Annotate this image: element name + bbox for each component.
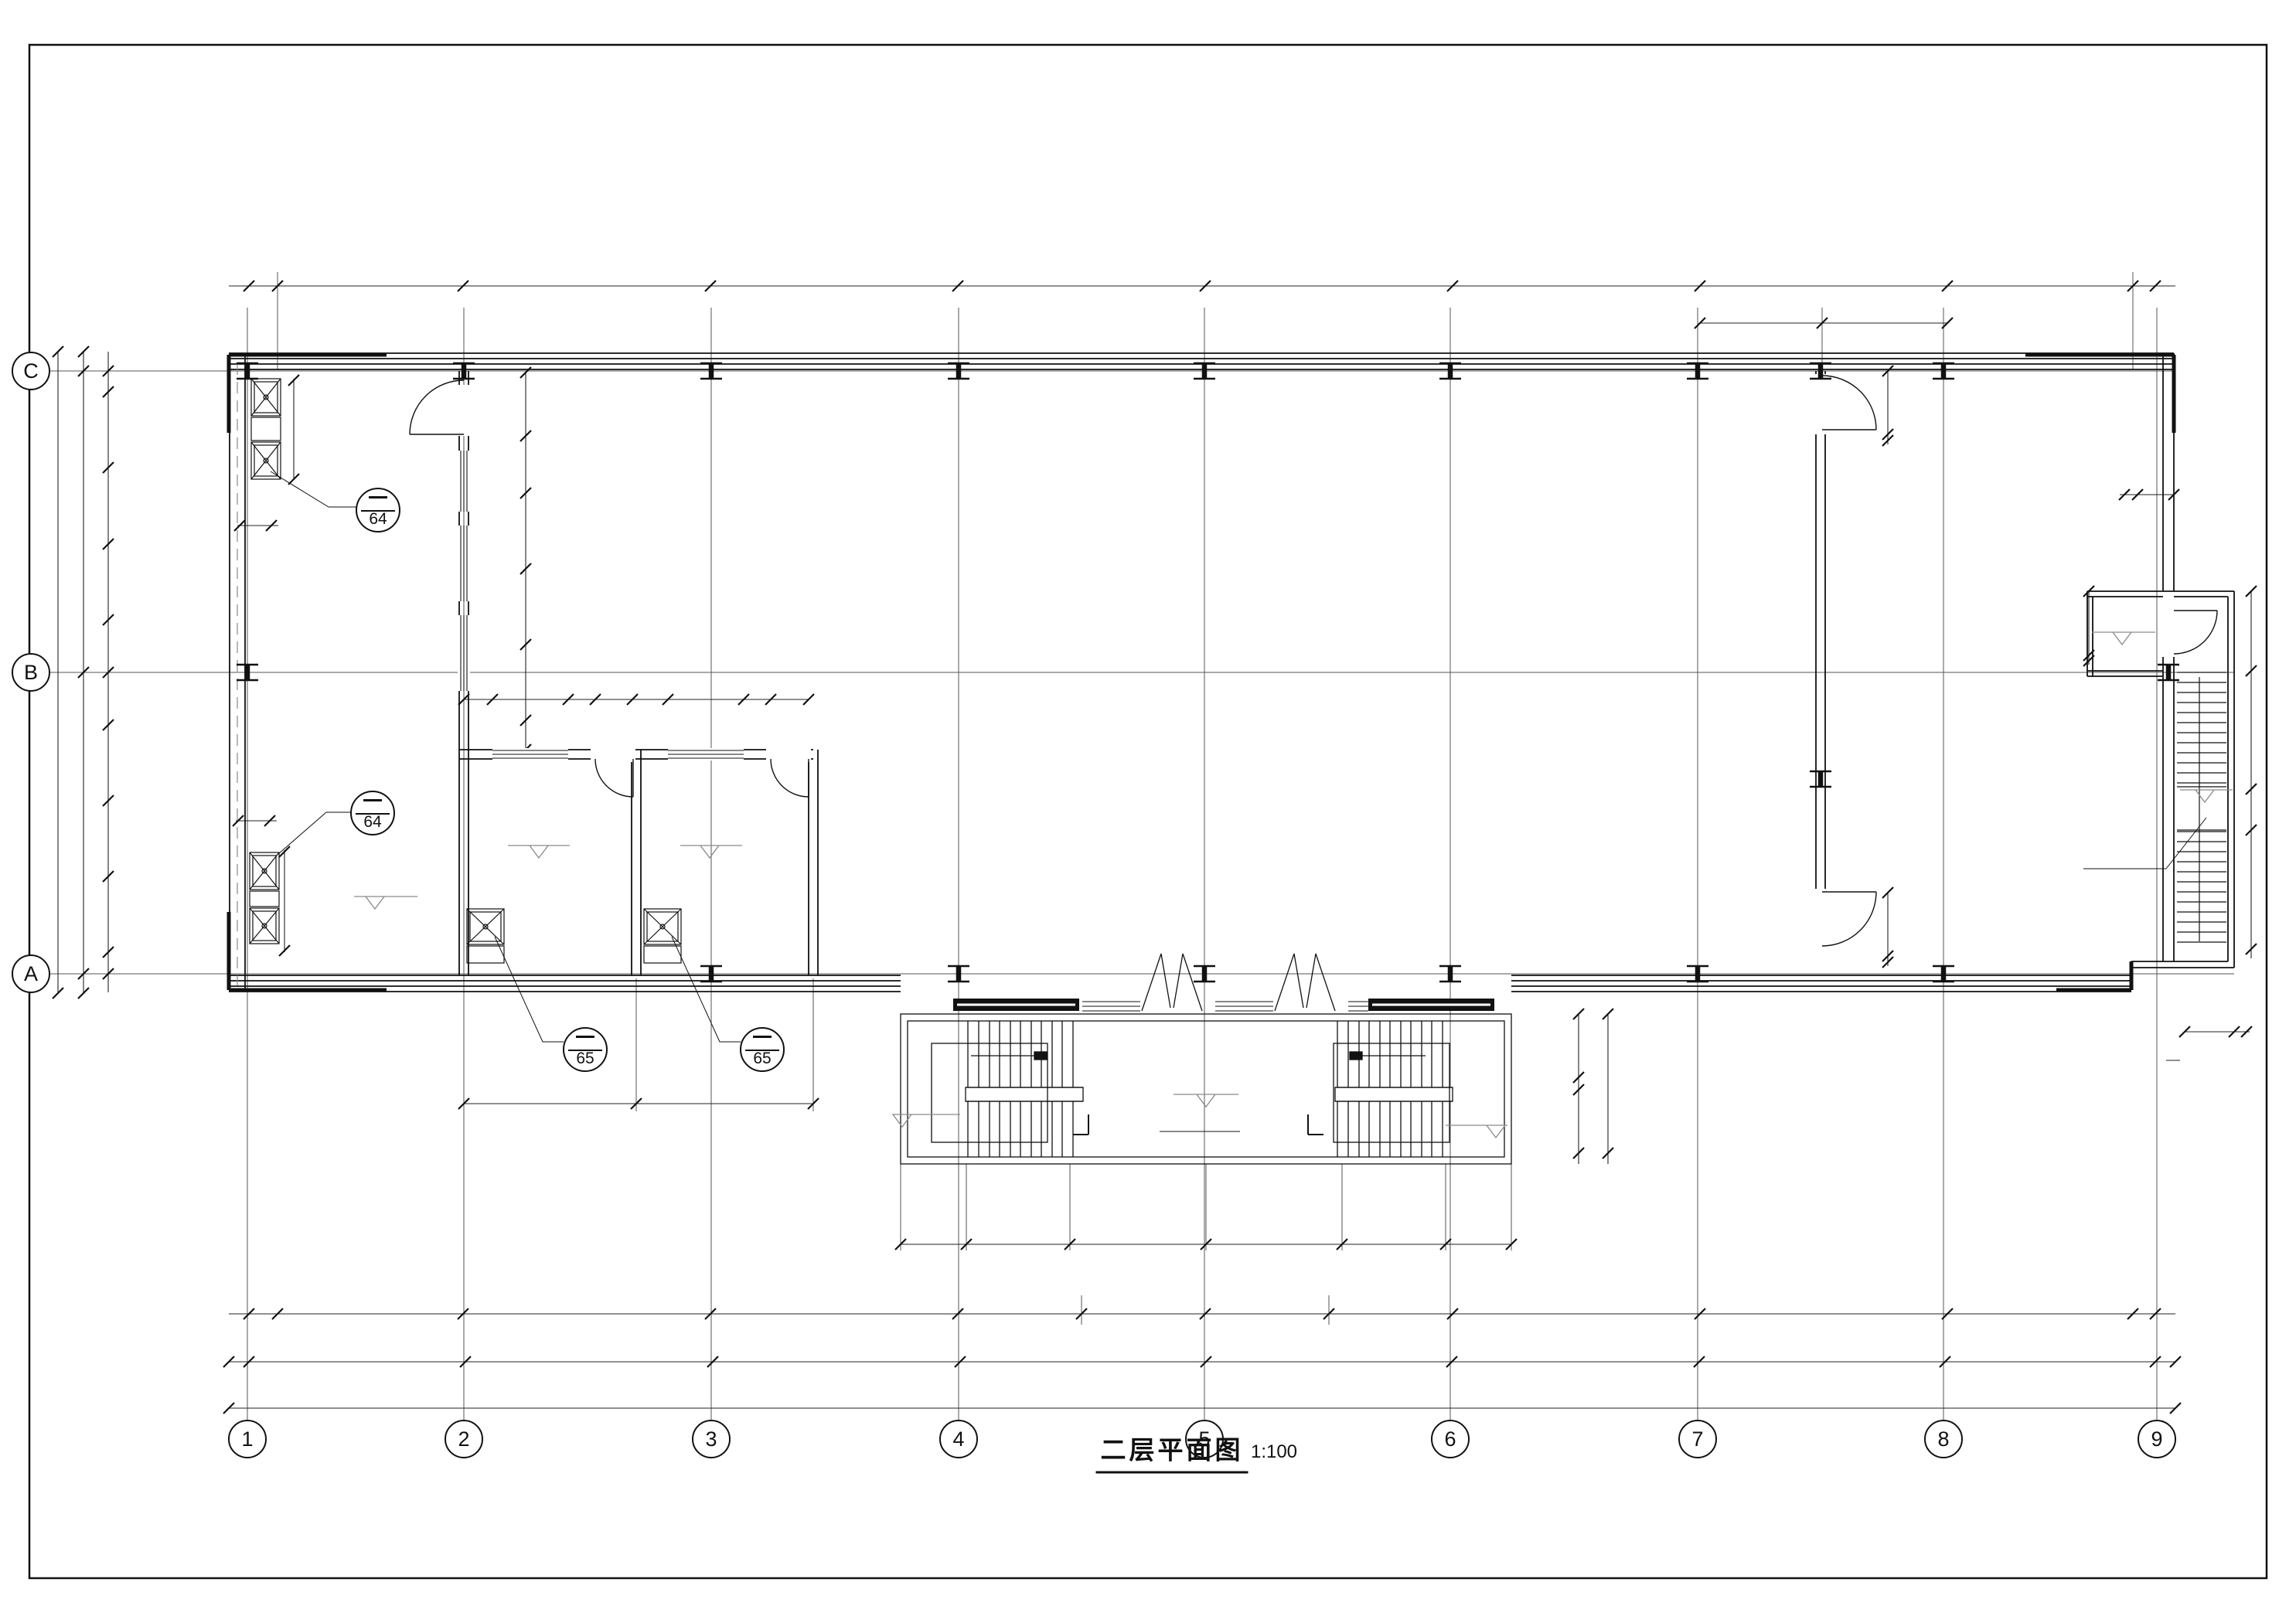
interior-windows — [461, 451, 744, 758]
doors — [410, 376, 2217, 946]
dimension-lines — [58, 286, 2251, 1408]
grid-bubble: 8 — [1924, 1420, 1963, 1458]
stair-2 — [2177, 672, 2226, 942]
grid-bubble: 7 — [1678, 1420, 1717, 1458]
detail-callout: 65 — [563, 1027, 608, 1072]
grid-bubble: 1 — [228, 1420, 267, 1458]
detail-callout: 65 — [740, 1027, 785, 1072]
floor-plan-linework — [0, 0, 2296, 1623]
grid-bubble: 3 — [692, 1420, 731, 1458]
grid-bubble: 2 — [445, 1420, 483, 1458]
grid-lines — [48, 308, 2234, 1421]
drawing-title: 二层平面图 — [1096, 1430, 1248, 1474]
detail-callout: 64 — [350, 791, 395, 835]
grid-bubble: 4 — [939, 1420, 978, 1458]
stair-1-wall-bars — [953, 999, 1494, 1011]
detail-callout: 64 — [356, 488, 400, 532]
stair-1 — [901, 1014, 1511, 1164]
level-triangles — [354, 632, 2233, 1138]
dimension-ticks — [53, 281, 2257, 1414]
grid-bubble: 9 — [2138, 1420, 2176, 1458]
grid-bubble: C — [12, 352, 50, 390]
grid-bubble: A — [12, 954, 50, 993]
grid-bubble: B — [12, 653, 50, 692]
door-sills-m6 — [1082, 1002, 1368, 1011]
leader-lines — [271, 471, 2206, 1131]
folding-doors-m6 — [1142, 954, 1335, 1011]
opening-masks — [457, 374, 2175, 954]
drawing-scale: 1:100 — [1251, 1441, 1297, 1463]
grid-bubble: 6 — [1431, 1420, 1470, 1458]
interior-walls — [459, 371, 1825, 975]
drawing-sheet: CBA123456789 64 64 65 65 二层平面图 1:100 — [0, 0, 2296, 1623]
